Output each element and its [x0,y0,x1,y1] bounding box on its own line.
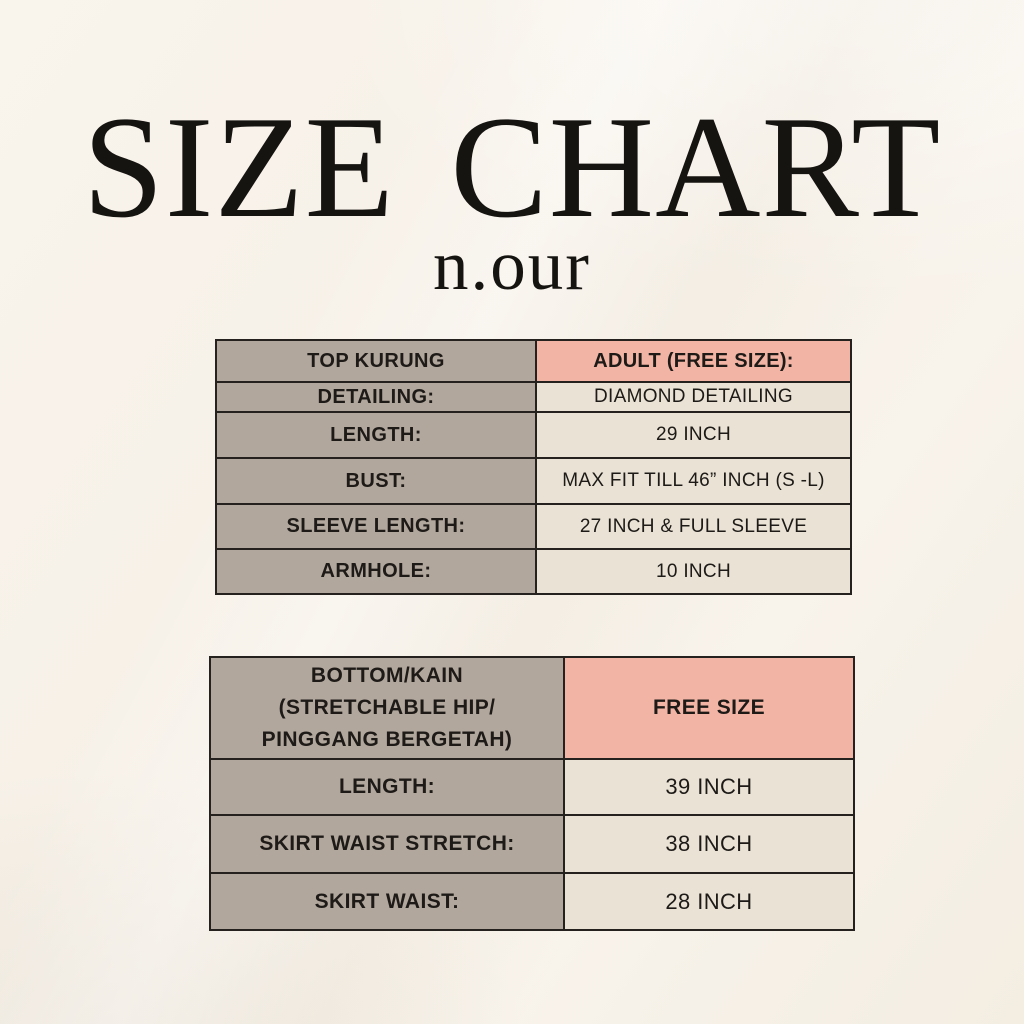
bottom-kain-table: BOTTOM/KAIN (STRETCHABLE HIP/ PINGGANG B… [209,656,855,931]
table-title-cell: BOTTOM/KAIN (STRETCHABLE HIP/ PINGGANG B… [211,658,563,758]
table-row: SLEEVE LENGTH: 27 INCH & FULL SLEEVE [217,503,850,548]
table-title-lines: BOTTOM/KAIN (STRETCHABLE HIP/ PINGGANG B… [262,660,513,756]
row-value: 38 INCH [563,816,853,872]
row-label: LENGTH: [211,760,563,814]
row-value: 28 INCH [563,874,853,929]
size-chart-page: SIZE CHART n.our TOP KURUNG ADULT (FREE … [0,0,1024,1024]
table-header-row: TOP KURUNG ADULT (FREE SIZE): [217,341,850,381]
row-value: 10 INCH [535,550,850,593]
row-label: SLEEVE LENGTH: [217,505,535,548]
table-title-cell: TOP KURUNG [217,341,535,381]
row-label: SKIRT WAIST STRETCH: [211,816,563,872]
row-value: DIAMOND DETAILING [535,383,850,411]
table-row: SKIRT WAIST STRETCH: 38 INCH [211,814,853,872]
page-title: SIZE CHART [0,94,1024,240]
row-value: 39 INCH [563,760,853,814]
table-row: LENGTH: 39 INCH [211,758,853,814]
table-title-line: BOTTOM/KAIN [262,660,513,692]
row-label: DETAILING: [217,383,535,411]
brand-name: n.our [0,231,1024,302]
row-label: BUST: [217,459,535,503]
row-value: 27 INCH & FULL SLEEVE [535,505,850,548]
table-header-row: BOTTOM/KAIN (STRETCHABLE HIP/ PINGGANG B… [211,658,853,758]
table-row: BUST: MAX FIT TILL 46” INCH (S -L) [217,457,850,503]
table-title-line: PINGGANG BERGETAH) [262,724,513,756]
row-label: SKIRT WAIST: [211,874,563,929]
table-row: ARMHOLE: 10 INCH [217,548,850,593]
row-value: MAX FIT TILL 46” INCH (S -L) [535,459,850,503]
table-row: DETAILING: DIAMOND DETAILING [217,381,850,411]
row-value: 29 INCH [535,413,850,457]
top-kurung-table: TOP KURUNG ADULT (FREE SIZE): DETAILING:… [215,339,852,595]
table-title-line: (STRETCHABLE HIP/ [262,692,513,724]
table-size-header-cell: FREE SIZE [563,658,853,758]
table-row: LENGTH: 29 INCH [217,411,850,457]
table-row: SKIRT WAIST: 28 INCH [211,872,853,929]
row-label: ARMHOLE: [217,550,535,593]
table-size-header-cell: ADULT (FREE SIZE): [535,341,850,381]
row-label: LENGTH: [217,413,535,457]
